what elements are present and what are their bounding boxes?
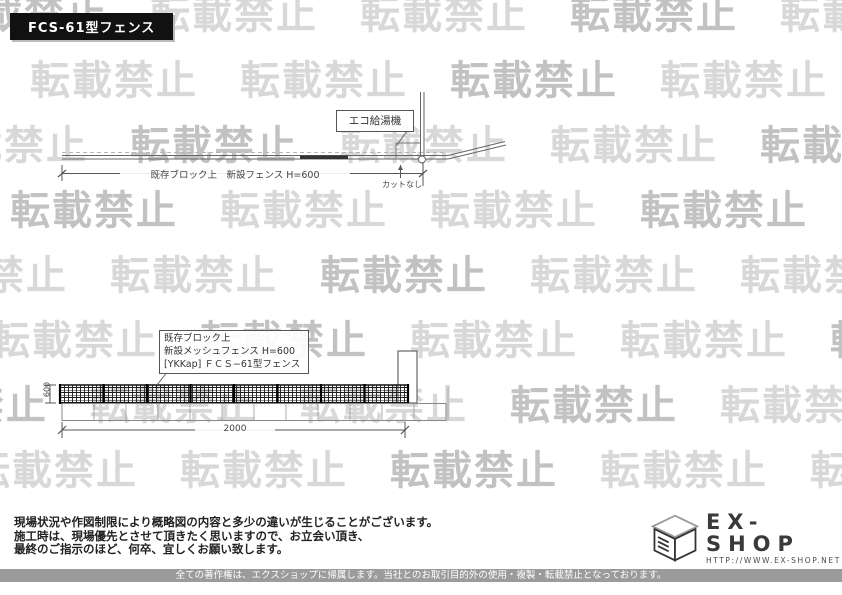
- block-joints: [94, 404, 414, 421]
- watermark-text: 転載禁止: [320, 243, 488, 301]
- title-badge-label: FCS-61型フェンス: [28, 21, 155, 36]
- watermark-text: 転載禁止: [780, 0, 842, 40]
- spec-line-3: [YKKap] ＦＣＳ−61型フェンス: [164, 358, 304, 371]
- spec-line-1: 既存ブロック上: [164, 332, 304, 345]
- heater-label-box: エコ給湯機: [336, 110, 414, 132]
- note-line-3: 最終のご指示のほど、何卒、宜しくお願い致します。: [14, 543, 438, 557]
- heater-label: エコ給湯機: [349, 115, 402, 127]
- plan-dimension-label: 既存ブロック上 新設フェンス H=600: [120, 167, 350, 181]
- diagonal-line-top: [448, 142, 505, 156]
- note-line-1: 現場状況や作図制限により概略図の内容と多少の違いが生じることがございます。: [14, 516, 438, 530]
- drawing-page: 転載禁止転載禁止転載禁止転載禁止転載禁止転載禁止転載禁止転載禁止転載禁止転載禁止…: [0, 0, 842, 595]
- logo-name: EX-SHOP: [706, 511, 842, 555]
- watermark-text: 転載禁止: [0, 243, 68, 301]
- watermark-text: 転載禁止: [360, 0, 528, 40]
- watermark-text: 転載禁止: [570, 0, 738, 40]
- watermark-text: 転載禁止: [110, 243, 278, 301]
- copyright-bar: 全ての著作権は、エクスショップに帰属します。当社とのお取引目的外の使用・複製・転…: [0, 569, 842, 582]
- width-dimension-label: 2000: [195, 424, 275, 434]
- cut-label: カットなし: [382, 179, 422, 190]
- cut-dim-arrow: [398, 165, 403, 170]
- elevation-linework-svg: [0, 325, 842, 455]
- watermark-text: 転載禁止: [740, 243, 842, 301]
- notes-block: 現場状況や作図制限により概略図の内容と多少の違いが生じることがございます。 施工…: [14, 516, 438, 557]
- diagonal-line-bottom: [448, 145, 506, 159]
- spec-label-box: 既存ブロック上 新設メッシュフェンス H=600 [YKKap] ＦＣＳ−61型…: [159, 330, 309, 374]
- logo-url: HTTP://WWW.EX-SHOP.NET: [706, 556, 842, 565]
- plan-view-diagram: エコ給湯機 既存ブロック上 新設フェンス H=600 カットなし: [0, 85, 842, 200]
- note-line-2: 施工時は、現場優先とさせて頂きたく思いますので、お立会い頂き、: [14, 530, 438, 544]
- elevation-view-diagram: 既存ブロック上 新設メッシュフェンス H=600 [YKKap] ＦＣＳ−61型…: [0, 325, 842, 455]
- copyright-text: 全ての著作権は、エクスショップに帰属します。当社とのお取引目的外の使用・複製・転…: [176, 570, 667, 581]
- spec-line-2: 新設メッシュフェンス H=600: [164, 345, 304, 358]
- watermark-text: 転載禁止: [150, 0, 318, 40]
- watermark-text: 転載禁止: [530, 243, 698, 301]
- corner-post-circle: [419, 156, 426, 163]
- cube-icon: [650, 511, 700, 565]
- title-badge: FCS-61型フェンス: [10, 13, 173, 40]
- height-dimension-label: 600: [43, 381, 52, 399]
